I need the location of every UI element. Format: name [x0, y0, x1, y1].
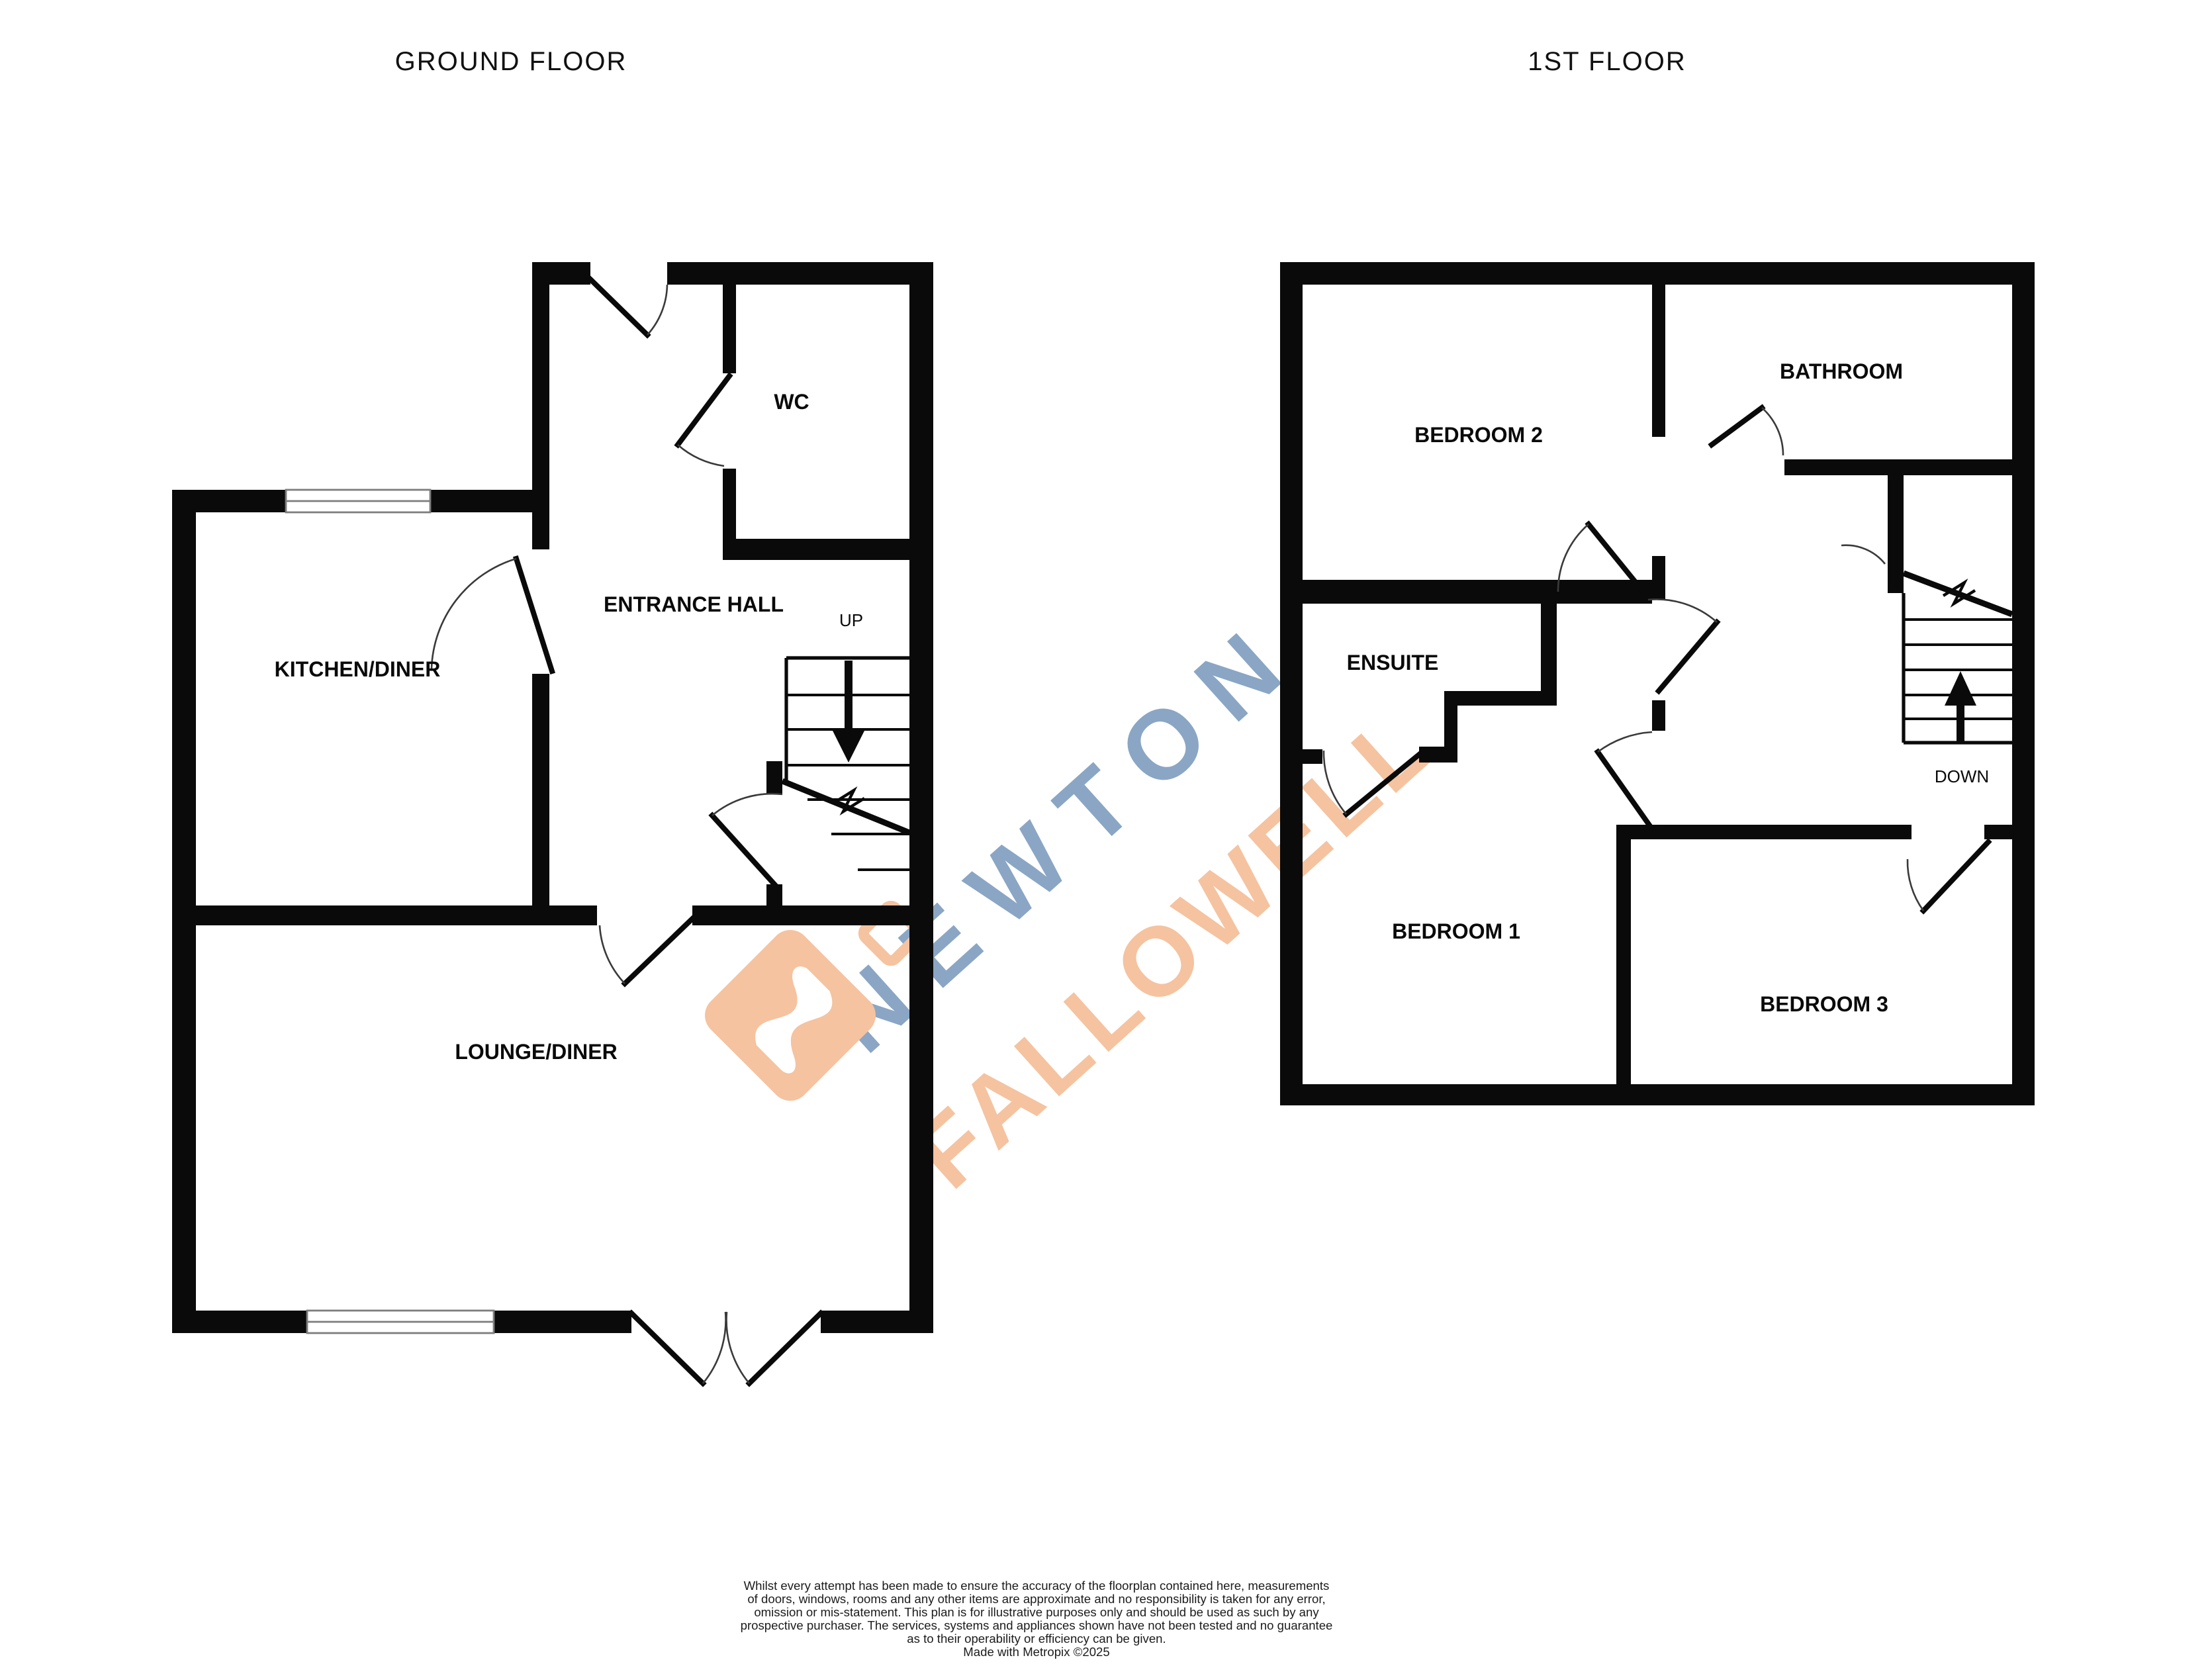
up-label: UP	[839, 610, 863, 630]
down-label: DOWN	[1935, 766, 1989, 786]
bedroom3-label: BEDROOM 3	[1760, 992, 1888, 1016]
door-post	[766, 761, 782, 794]
down-arrow-icon	[1945, 671, 1976, 741]
wall	[723, 281, 736, 373]
lounge-window	[307, 1311, 494, 1333]
wc-label: WC	[774, 390, 809, 414]
wall	[172, 905, 597, 925]
floorplan-image: NEWTON FALLOWELL GROUND FLOOR 1ST FLOOR	[0, 0, 2212, 1668]
lounge-door	[600, 919, 692, 984]
wall	[1541, 604, 1557, 706]
wall	[1303, 749, 1322, 764]
wall	[1888, 475, 1904, 564]
wall	[1280, 262, 1303, 1105]
bathroom-door	[1712, 408, 1783, 455]
kitchen-diner-label: KITCHEN/DINER	[275, 657, 441, 681]
entrance-hall-label: ENTRANCE HALL	[604, 592, 784, 616]
wall	[1984, 825, 2012, 839]
bedroom1-label: BEDROOM 1	[1392, 919, 1520, 943]
wall	[1303, 580, 1652, 604]
kitchen-window	[286, 490, 430, 512]
wall	[692, 905, 909, 925]
wall	[1652, 281, 1665, 437]
door-post	[1888, 564, 1904, 593]
wall	[821, 1311, 933, 1333]
up-arrow-icon	[833, 661, 864, 763]
wall	[1444, 691, 1557, 706]
disclaimer-line: Whilst every attempt has been made to en…	[744, 1579, 1330, 1593]
wall	[532, 281, 549, 549]
ensuite-label: ENSUITE	[1347, 651, 1439, 674]
disclaimer-text: Whilst every attempt has been made to en…	[741, 1579, 1333, 1659]
first-floor-plan: BEDROOM 2 BATHROOM ENSUITE BEDROOM 1 BED…	[1280, 262, 2035, 1105]
understairs-door	[712, 794, 782, 884]
bedroom2-label: BEDROOM 2	[1414, 423, 1543, 447]
wall	[1419, 747, 1457, 763]
wall	[1616, 825, 1912, 839]
newton-fallowell-watermark: NEWTON FALLOWELL	[697, 596, 1455, 1209]
first-floor-title: 1ST FLOOR	[1528, 47, 1686, 76]
wall	[430, 490, 547, 512]
stairs-ground-floor	[782, 658, 909, 870]
wall	[1280, 1084, 2035, 1105]
upper-landing-door	[1648, 599, 1717, 691]
door-post	[1652, 700, 1665, 731]
wall	[2012, 262, 2035, 1105]
disclaimer-line: of doors, windows, rooms and any other i…	[747, 1592, 1325, 1606]
disclaimer-line: prospective purchaser. The services, sys…	[741, 1618, 1333, 1632]
ground-floor-plan: KITCHEN/DINER ENTRANCE HALL WC UP LOUNGE…	[172, 262, 933, 1383]
patio-double-doors	[631, 1312, 821, 1383]
wc-door	[678, 376, 729, 466]
wall	[1616, 825, 1631, 1084]
door-post	[1652, 556, 1665, 600]
wall	[909, 262, 933, 1333]
front-door	[590, 279, 667, 335]
wall	[172, 490, 286, 512]
wall	[667, 262, 933, 285]
bedroom3-door	[1908, 842, 1988, 911]
wall	[723, 469, 736, 539]
bedroom1-door	[1598, 732, 1655, 833]
bathroom-label: BATHROOM	[1780, 359, 1903, 383]
wall	[172, 1311, 307, 1333]
ground-floor-title: GROUND FLOOR	[395, 47, 627, 76]
stairs-first-floor	[1904, 573, 2012, 743]
wall	[1784, 459, 2012, 475]
disclaimer-line: Made with Metropix ©2025	[963, 1645, 1109, 1659]
disclaimer-line: omission or mis-statement. This plan is …	[754, 1605, 1319, 1619]
disclaimer-line: as to their operability or efficiency ca…	[907, 1632, 1166, 1645]
kitchen-door	[432, 559, 552, 671]
wall	[723, 539, 909, 560]
lounge-diner-label: LOUNGE/DINER	[455, 1040, 617, 1064]
landing-arc	[1841, 545, 1885, 564]
wall	[494, 1311, 631, 1333]
wall	[532, 674, 549, 925]
